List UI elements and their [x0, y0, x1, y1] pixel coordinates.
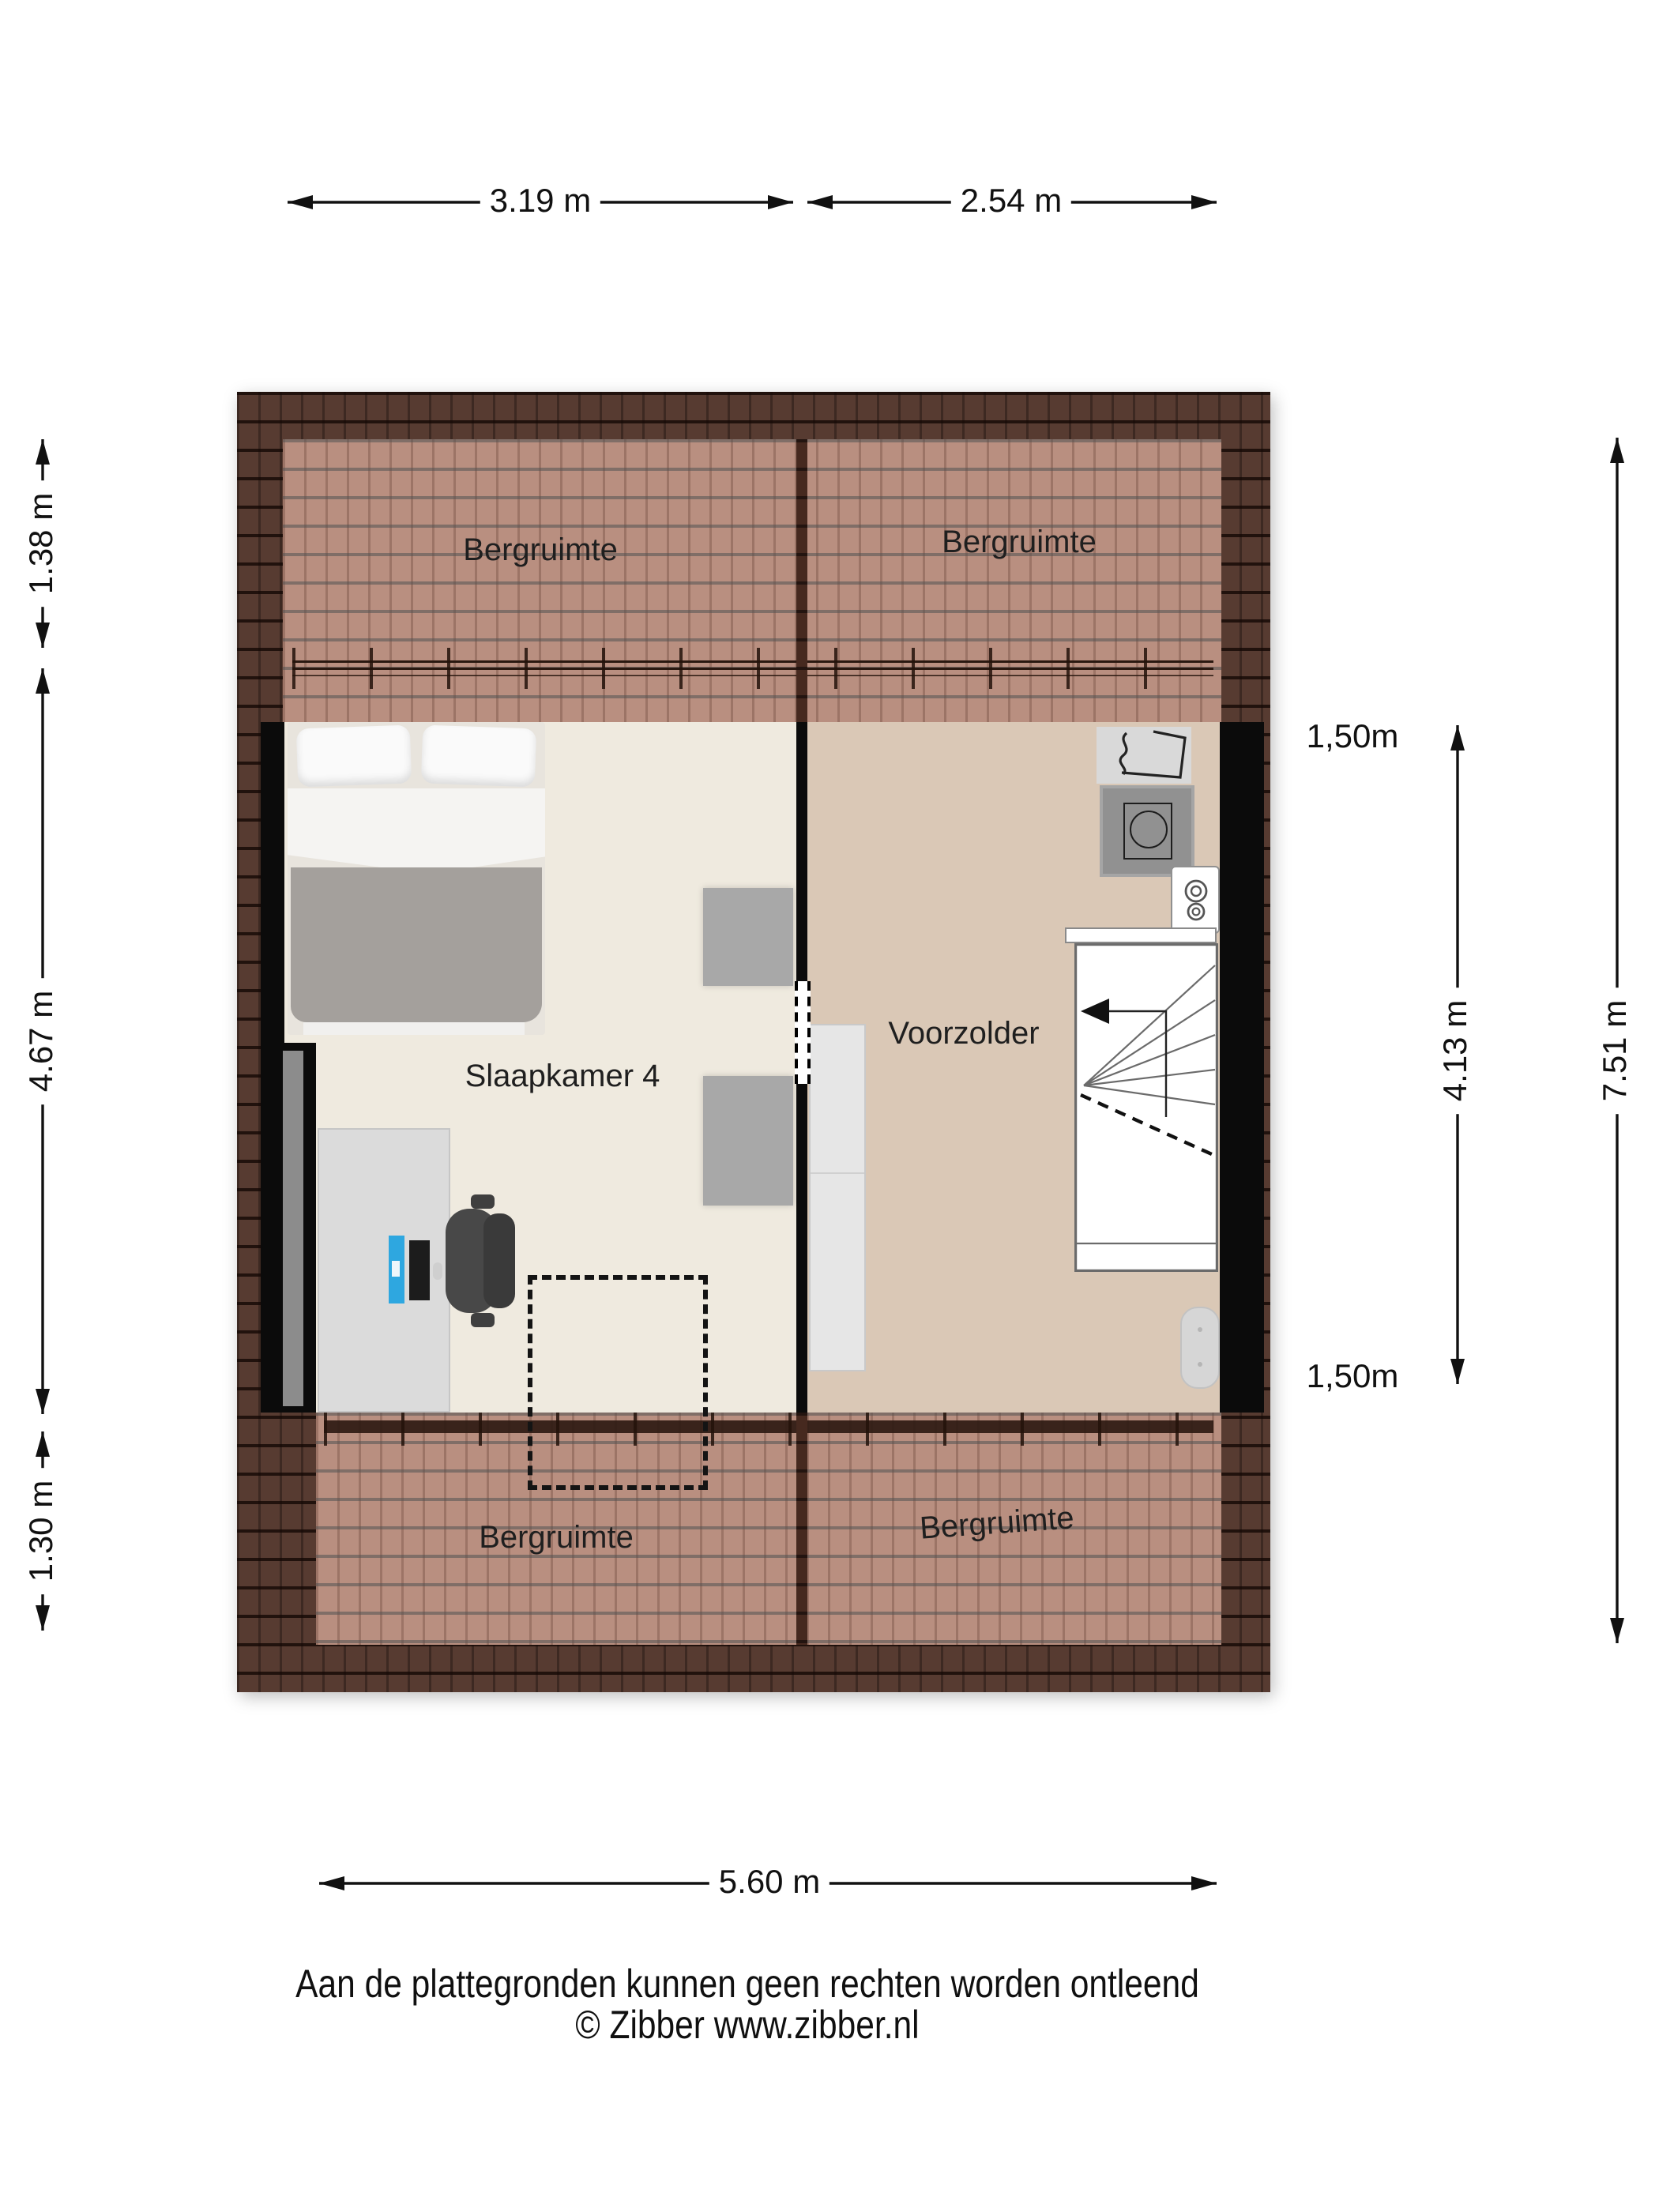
wall-center-upper: [796, 722, 807, 980]
dim-bottom: 5.60 m: [709, 1864, 829, 1902]
wardrobe-seam: [810, 1172, 864, 1174]
boiler: [1170, 865, 1219, 933]
sink-unit: [1096, 726, 1191, 783]
floorplan: Bergruimte Bergruimte Slaapkamer 4 Voorz…: [237, 392, 1270, 1691]
mat-dot-top: [1198, 1326, 1202, 1331]
page: 3.19 m 2.54 m 1.38 m 4.67 m 1.30 m 1,50m…: [0, 0, 1659, 2212]
dim-left-upper: 1.38 m: [24, 480, 62, 607]
mat-dot-bottom: [1198, 1361, 1202, 1366]
bed-foot-sheet: [303, 1022, 525, 1035]
pillow-right: [421, 725, 536, 788]
chair-armrest-bottom: [471, 1313, 495, 1327]
roof-divider-bottom: [796, 1412, 807, 1644]
wall-right: [1219, 722, 1264, 1413]
washer-drum: [1129, 810, 1167, 848]
dim-right-751: 7.51 m: [1597, 987, 1635, 1114]
office-chair: [446, 1194, 518, 1327]
dim-top-left: 3.19 m: [480, 183, 600, 221]
roof-window-dashed: [527, 1275, 708, 1490]
dim-left-lower: 1.30 m: [24, 1468, 62, 1594]
dim-top-right: 2.54 m: [951, 183, 1071, 221]
wardrobe: [808, 1024, 866, 1371]
stairs-landing: [1064, 927, 1216, 943]
room-label-bergruimte-top-right: Bergruimte: [942, 525, 1097, 562]
chair-backrest: [483, 1213, 515, 1308]
room-label-bergruimte-top-left: Bergruimte: [463, 533, 618, 570]
roof-divider-top: [796, 439, 807, 722]
knee-wall-ticks-bottom: [324, 1408, 1213, 1446]
stairs: [1074, 943, 1218, 1272]
wall-left-duct: [282, 1051, 303, 1406]
dim-right-150-bottom: 1,50m: [1297, 1359, 1409, 1397]
roof-band-bottom: [316, 1412, 1221, 1644]
washing-machine: [1100, 784, 1194, 877]
knee-wall-ticks-top: [292, 648, 1213, 689]
wall-center-lower: [796, 1083, 807, 1412]
room-label-voorzolder: Voorzolder: [888, 1017, 1039, 1053]
bed-sheet: [288, 788, 545, 874]
room-label-slaapkamer4: Slaapkamer 4: [465, 1059, 660, 1096]
chair-armrest-top: [471, 1194, 495, 1209]
laptop-keyboard: [408, 1240, 430, 1300]
desk-mouse: [433, 1262, 442, 1280]
boiler-symbol: [1172, 867, 1217, 931]
dim-left-middle: 4.67 m: [24, 978, 62, 1104]
bed: [288, 722, 545, 1035]
footer-copyright: © Zibber www.zibber.nl: [575, 2003, 919, 2049]
laptop-screen-glare: [391, 1261, 399, 1277]
bed-duvet: [291, 867, 542, 1022]
cabinet-upper: [703, 887, 792, 986]
cabinet-lower: [703, 1075, 792, 1205]
dim-right-413: 4.13 m: [1438, 987, 1476, 1114]
door-opening: [794, 980, 810, 1083]
room-label-bergruimte-bottom-left: Bergruimte: [479, 1521, 634, 1557]
footer-disclaimer: Aan de plattegronden kunnen geen rechten…: [295, 1962, 1199, 2008]
floor-mat: [1180, 1306, 1220, 1388]
dim-right-150-top: 1,50m: [1297, 719, 1409, 757]
sink-symbol: [1096, 726, 1191, 783]
laptop-screen: [388, 1236, 404, 1303]
pillow-left: [296, 725, 412, 788]
